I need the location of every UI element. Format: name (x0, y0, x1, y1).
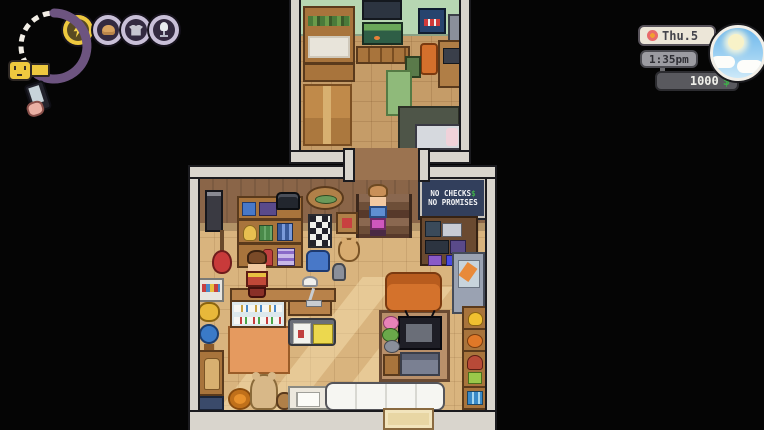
fish (374, 36, 380, 40)
storage-cube (288, 318, 336, 346)
rotary-telephone (276, 192, 300, 210)
white-wall-shelf (198, 278, 224, 302)
bread-icon (102, 25, 115, 35)
open-book (296, 392, 320, 407)
flower-icon (647, 30, 658, 41)
shop-wall-right (487, 167, 495, 430)
fish-poster (418, 8, 446, 34)
shelf-divider (239, 218, 301, 221)
player-character (365, 184, 391, 236)
money-amount: 1000 (690, 74, 719, 88)
shop-wall-bottom-right (434, 412, 495, 430)
player-shirt (369, 206, 387, 218)
blue-books (467, 391, 483, 405)
bed (415, 124, 462, 150)
bedroom-wall-bottom-left (291, 152, 353, 162)
game-screen: NO CHECKS$ NO PROMISES (0, 0, 764, 430)
bedroom-wall-left (291, 0, 299, 162)
teddy-bear (338, 238, 360, 262)
framed-picture (336, 212, 358, 234)
room-shop: NO CHECKS$ NO PROMISES (190, 167, 495, 430)
orange-rug (228, 326, 290, 374)
time-display: 1:35pm (640, 50, 698, 68)
magazines (277, 248, 295, 266)
poster-art (424, 19, 440, 26)
desk-lamp (300, 276, 326, 304)
mood-face-icon (8, 60, 32, 81)
mood-bar (30, 63, 50, 77)
green-book (468, 372, 482, 384)
retro-tv (398, 316, 442, 350)
sign-line1: NO CHECKS$ (422, 189, 484, 198)
checkout-counter[interactable] (325, 382, 445, 411)
no-checks-sign: NO CHECKS$ NO PROMISES (420, 178, 486, 218)
player-hair (368, 184, 388, 198)
karaoke-stat-icon (149, 15, 179, 45)
date-label: Thu.5 (662, 29, 698, 43)
entrance-door-mat[interactable] (383, 408, 434, 430)
vending-fridge (452, 252, 485, 314)
corridor-wall-right (420, 150, 428, 180)
plush-bear-large (250, 374, 278, 410)
blue-backpack (306, 250, 330, 272)
computer-monitor (443, 48, 461, 64)
aquarium-dresser (356, 46, 410, 64)
sign-dollar-icon: $ (471, 189, 476, 198)
plush-lion (228, 388, 252, 410)
red-trinket (298, 330, 304, 338)
papers (308, 36, 350, 58)
electric-guitar (212, 230, 232, 277)
small-drawers (383, 354, 400, 376)
books-row (308, 16, 350, 26)
player-shoes (370, 230, 386, 236)
amplifier (400, 352, 440, 376)
gray-cat-figure (332, 263, 346, 281)
food-stat-icon (93, 15, 123, 45)
player-pants (370, 218, 386, 230)
checkered-cloth (308, 214, 332, 248)
sun-icon (728, 34, 744, 50)
bookshelf (303, 6, 355, 82)
shop-wall-bottom-left (190, 412, 383, 430)
shopkeeper-npc[interactable] (244, 250, 270, 300)
corridor-wall-left (345, 150, 353, 180)
shelf-divider (239, 242, 301, 245)
orange-couch (385, 272, 442, 312)
coat-stand (198, 350, 224, 396)
wall-tv (362, 0, 402, 20)
cloud-icon (711, 56, 735, 68)
cloud-icon (737, 60, 763, 73)
bed-pillow (446, 128, 458, 146)
shop-wall-left (190, 167, 198, 430)
yellow-plush (198, 302, 220, 322)
right-wall-shelf (462, 306, 487, 410)
microphone-icon (153, 19, 175, 41)
shop-wall-top-right (420, 167, 495, 177)
blue-books (277, 223, 293, 241)
shirt-icon (129, 25, 143, 36)
dark-poster (205, 190, 223, 232)
orange-chair (420, 43, 438, 75)
weather-indicator (710, 25, 764, 81)
duck-toy (468, 312, 483, 326)
aquarium (362, 22, 403, 45)
fish-trophy-plaque (306, 186, 344, 210)
player-face (370, 197, 386, 206)
navy-crate (198, 396, 224, 411)
glass-display-case (230, 300, 286, 328)
sign-line2: NO PROMISES (422, 198, 484, 207)
laundry-stat-icon (121, 15, 151, 45)
green-bottles (259, 225, 273, 241)
date-display: Thu.5 (638, 25, 716, 46)
hanging-coat (204, 358, 220, 390)
shop-wall-top-left (190, 167, 353, 177)
red-mushroom (467, 355, 483, 370)
plush-item (243, 225, 257, 241)
globe (198, 324, 220, 350)
room-bedroom (291, 0, 469, 162)
purple-console (259, 202, 277, 216)
cardboard-boxes (303, 84, 352, 146)
pumpkin (467, 334, 483, 348)
shelf-line (305, 62, 353, 65)
corridor-floor (353, 148, 420, 180)
plush-pile (382, 316, 400, 352)
bedroom-wall-right (461, 0, 469, 162)
box-tape (323, 86, 331, 144)
blue-box (242, 202, 256, 216)
yellow-folder (313, 324, 333, 344)
time-label: 1:35pm (649, 53, 689, 66)
